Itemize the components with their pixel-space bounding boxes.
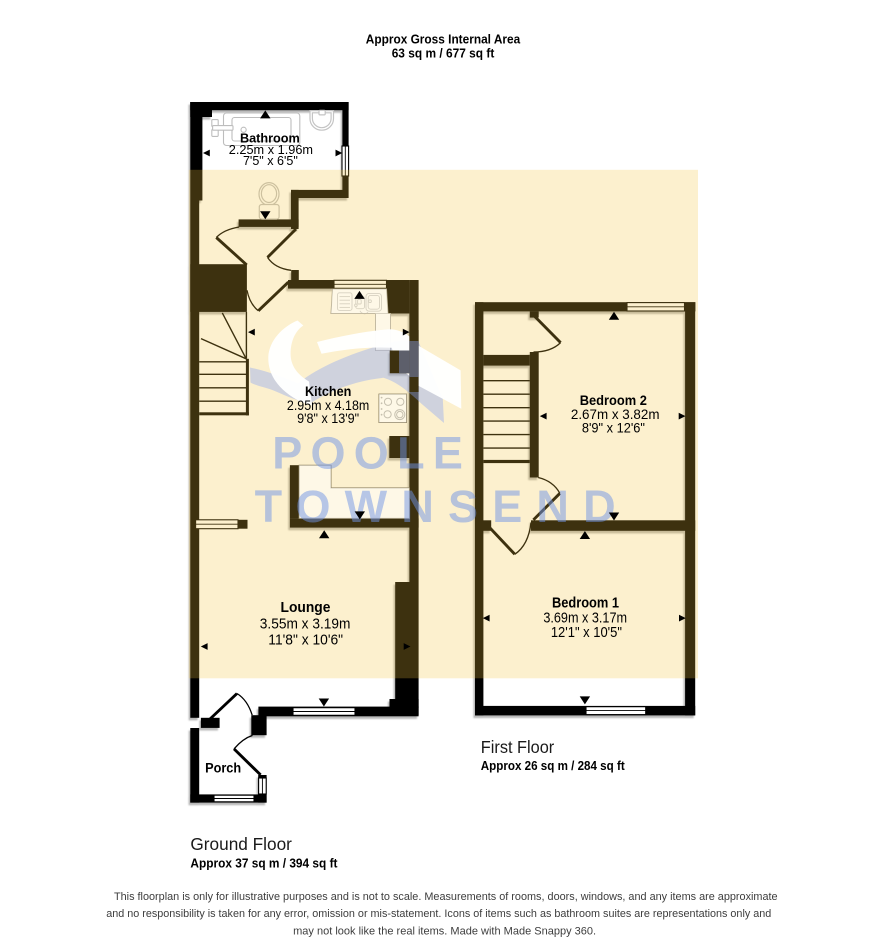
svg-text:POOLE: POOLE [272, 428, 463, 479]
svg-text:Lounge: Lounge [281, 600, 331, 616]
svg-text:9'8" x 13'9": 9'8" x 13'9" [297, 410, 359, 426]
svg-text:12'1" x 10'5": 12'1" x 10'5" [551, 625, 622, 641]
svg-text:7'5" x 6'5": 7'5" x 6'5" [243, 153, 298, 168]
svg-text:3.55m x 3.19m: 3.55m x 3.19m [260, 616, 351, 632]
svg-text:Approx 37 sq m / 394 sq ft: Approx 37 sq m / 394 sq ft [190, 855, 338, 870]
svg-text:Bedroom 1: Bedroom 1 [552, 595, 619, 611]
svg-text:First Floor: First Floor [481, 737, 555, 757]
svg-text:and no responsibility is taken: and no responsibility is taken for any e… [106, 908, 771, 920]
svg-text:11'8" x 10'6": 11'8" x 10'6" [268, 633, 343, 649]
svg-text:Approx 26 sq m / 284 sq ft: Approx 26 sq m / 284 sq ft [481, 758, 626, 773]
svg-text:8'9" x 12'6": 8'9" x 12'6" [582, 420, 645, 436]
svg-text:may not look like the real ite: may not look like the real items. Made w… [293, 926, 596, 938]
svg-text:63 sq m / 677 sq ft: 63 sq m / 677 sq ft [392, 47, 495, 61]
svg-text:This floorplan is only for ill: This floorplan is only for illustrative … [114, 891, 778, 903]
svg-text:Ground Floor: Ground Floor [190, 834, 292, 854]
svg-text:Porch: Porch [205, 761, 241, 776]
svg-text:Approx Gross Internal Area: Approx Gross Internal Area [366, 32, 521, 46]
